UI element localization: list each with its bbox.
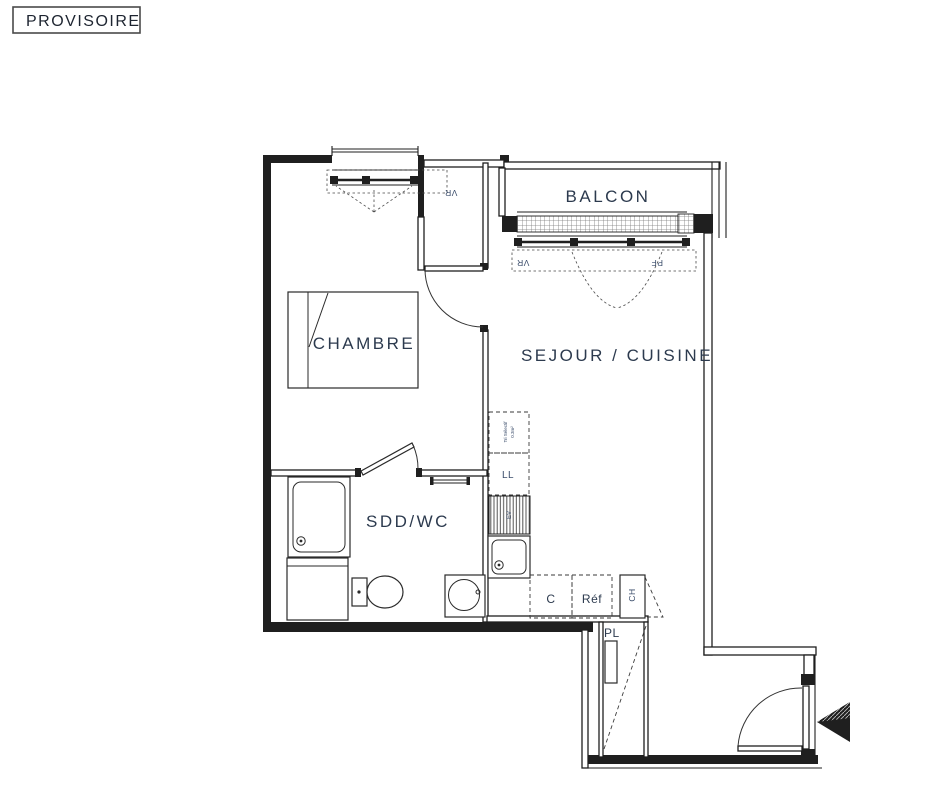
waste-sorting-box — [489, 412, 529, 453]
shower-room-label: SDD/WC — [366, 512, 450, 531]
balcony-threshold-hatch — [517, 216, 678, 232]
waste-sorting-label-1: Tri Sélectif — [503, 421, 508, 443]
entry-door-jamb-bottom — [801, 749, 815, 760]
cooker-label: C — [546, 592, 555, 606]
bath-door-swing-arc — [413, 445, 418, 469]
french-door-swing-left — [572, 252, 617, 308]
entrance — [738, 674, 850, 760]
entry-left-wall — [582, 630, 588, 768]
top-wall-left-segment — [263, 155, 332, 163]
roller-shutter-zone — [327, 170, 447, 193]
entry-step-wall — [704, 647, 816, 655]
sill-left-stub — [502, 216, 517, 232]
shower-tray — [288, 477, 350, 557]
washing-machine-label: LL — [502, 470, 514, 481]
closet: PL — [603, 626, 646, 752]
closet-right-wall — [644, 622, 648, 757]
water-heater-label: CH — [627, 588, 637, 601]
balcony-label: BALCON — [566, 187, 651, 206]
fridge-label: Réf — [582, 592, 602, 606]
partition-upper — [483, 163, 488, 268]
bedroom-label: CHAMBRE — [313, 334, 416, 353]
worktop-label: EV — [507, 511, 513, 519]
top-wall-right-segment — [424, 160, 504, 167]
balcony: BALCON VR PF — [512, 187, 696, 308]
bathroom-north-wall-left — [271, 470, 360, 476]
balcony-left-wall — [499, 168, 505, 216]
living-kitchen: SEJOUR / CUISINE Tri Sélectif 0.3m² LL E… — [488, 346, 713, 618]
closet-label: PL — [604, 626, 620, 640]
bedroom-right-wall — [418, 217, 424, 270]
toilet-bowl — [367, 576, 403, 608]
left-exterior-wall — [263, 155, 271, 632]
casement-swing-lines — [336, 186, 412, 212]
sill-right-stub — [694, 214, 713, 233]
balcony-shutter-label: VR — [517, 258, 530, 268]
entry-door-closed-leaf — [803, 686, 809, 749]
bath-cabinet — [287, 558, 348, 620]
living-right-wall — [704, 233, 712, 655]
bathroom-bottom-wall — [263, 622, 593, 632]
closet-left-wall — [599, 622, 603, 757]
provisional-stamp: PROVISOIRE — [13, 7, 141, 33]
entry-door-jamb-top — [801, 674, 815, 685]
floor-plan-svg: PROVISOIRE — [0, 0, 945, 800]
entry-door-open-leaf — [738, 746, 802, 751]
balcony-top-wall — [504, 162, 720, 169]
kitchen-sink-drain-dot — [498, 564, 501, 567]
toilet — [352, 576, 403, 608]
hatched-pier — [678, 214, 694, 233]
towel-rail — [430, 477, 470, 485]
stamp-label: PROVISOIRE — [26, 13, 141, 30]
bedroom-door-swing-arc — [425, 269, 483, 327]
kitchen-sink — [488, 536, 530, 578]
washbasin — [445, 575, 485, 617]
bath-door-leaf — [361, 443, 414, 475]
closet-shelf — [605, 641, 617, 683]
door-jamb-cap — [480, 325, 488, 332]
bedroom-window-shutter-label: VR — [445, 188, 458, 198]
bedroom-door-leaf — [425, 266, 483, 271]
shower-drain-dot — [300, 540, 303, 543]
floor-plan-page: PROVISOIRE — [0, 0, 945, 800]
bath-door-jamb-cap — [355, 468, 361, 477]
window-right-jamb — [418, 155, 424, 217]
entry-bottom-wall — [585, 755, 818, 764]
toilet-button — [357, 590, 360, 593]
bathroom-north-wall-right — [418, 470, 487, 476]
bedroom-window: VR — [327, 146, 457, 212]
thin-walls — [271, 160, 816, 768]
bath-door-jamb-cap — [416, 468, 422, 477]
water-heater-door-line — [645, 577, 663, 617]
entry-right-wall-upper — [804, 655, 814, 676]
french-window-zone — [512, 250, 696, 271]
waste-sorting-label-2: 0.3m² — [510, 426, 515, 438]
living-kitchen-label: SEJOUR / CUISINE — [521, 346, 713, 365]
bedroom: CHAMBRE — [288, 263, 488, 388]
entry-door-swing-arc — [738, 688, 802, 746]
